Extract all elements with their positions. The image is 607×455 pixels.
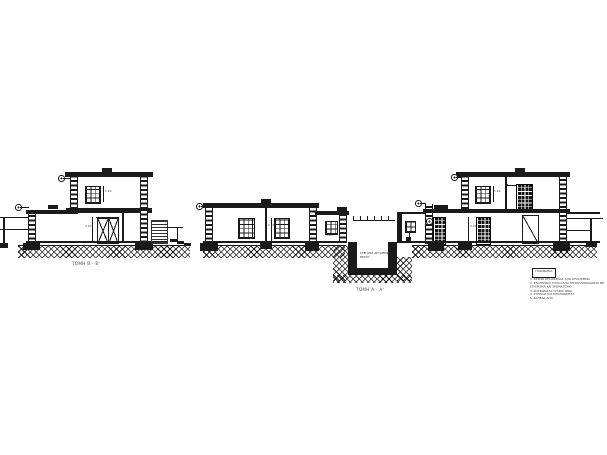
dimension-label: 1.20 bbox=[494, 190, 500, 193]
brick-wall bbox=[461, 177, 469, 209]
legend-title-box: ΥΠΟΜΝΗΜΑ bbox=[532, 268, 556, 278]
brick-wall bbox=[140, 177, 148, 209]
interior-wall bbox=[505, 177, 507, 209]
window bbox=[85, 186, 101, 204]
floor-slab bbox=[203, 241, 347, 243]
step bbox=[177, 241, 184, 244]
dimension-line bbox=[103, 186, 104, 202]
railing bbox=[353, 216, 395, 222]
balcony-door bbox=[516, 184, 533, 212]
tank-floor-slab bbox=[348, 268, 397, 275]
brick-wall bbox=[339, 215, 347, 243]
pergola-post bbox=[590, 219, 592, 241]
dimension-label: 1.20 bbox=[105, 190, 111, 193]
dimension-label: 2.20 bbox=[268, 224, 274, 227]
pergola-rail bbox=[567, 230, 591, 231]
ground-hatch bbox=[333, 275, 412, 283]
leader-line bbox=[420, 203, 426, 204]
step bbox=[170, 239, 177, 242]
dimension-line bbox=[468, 217, 469, 242]
brick-wall bbox=[70, 177, 78, 209]
legend-note-text: 5. ΔΑΠΕΔΑ ΑΠΟ ΜΑΡΜΑΡΟ bbox=[530, 297, 554, 300]
chimney-icon bbox=[261, 199, 271, 203]
floor-slab bbox=[26, 241, 168, 243]
section-label: ΤΟΜΗ Α - Α' bbox=[356, 288, 384, 292]
leader-dot bbox=[506, 184, 509, 187]
section-label: ΤΟΜΗ Β - Β' bbox=[72, 262, 100, 266]
window bbox=[475, 186, 491, 204]
wall bbox=[397, 214, 402, 243]
foundation-pad bbox=[0, 243, 8, 248]
legend-note: 1. ΦΕΡΩΝ ΟΡΓΑΝΙΣΜΟΣ ΑΠΟ ΟΠΛΙΣΜΕΝΟ ΣΚΥΡΟΔ… bbox=[530, 278, 606, 281]
window bbox=[238, 218, 255, 239]
basement-label: ΣΤΕΓΑΝΗ ΔΕΞΑΜΕΝΗ bbox=[360, 252, 390, 255]
legend-note: 5. ΔΑΠΕΔΑ ΑΠΟ ΜΑΡΜΑΡΟ bbox=[530, 297, 554, 300]
roof-slab bbox=[65, 172, 153, 177]
roof-slab bbox=[203, 203, 319, 208]
pergola-post bbox=[3, 218, 5, 243]
ground-hatch bbox=[412, 245, 597, 258]
dimension-label: 2.20 bbox=[470, 225, 476, 228]
dimension-line bbox=[493, 186, 494, 202]
legend-title: ΥΠΟΜΝΗΜΑ bbox=[535, 270, 552, 273]
basement-label: ΝΕΡΟΥ bbox=[360, 256, 370, 259]
dimension-line bbox=[271, 218, 272, 241]
chimney-icon bbox=[515, 168, 525, 172]
floor-slab bbox=[456, 209, 570, 213]
parapet bbox=[337, 207, 347, 211]
window bbox=[405, 221, 416, 233]
balcony-slab bbox=[567, 212, 600, 214]
chimney-icon bbox=[102, 168, 112, 172]
brick-wall bbox=[28, 214, 36, 244]
pergola-beam bbox=[567, 218, 603, 219]
leader-line bbox=[201, 206, 206, 207]
legend-note-text: 1. ΦΕΡΩΝ ΟΡΓΑΝΙΣΜΟΣ ΑΠΟ ΟΠΛΙΣΜΕΝΟ ΣΚΥΡΟΔ… bbox=[530, 278, 606, 281]
leader-line bbox=[20, 207, 29, 208]
door bbox=[522, 215, 539, 244]
window bbox=[274, 218, 290, 239]
ground-hatch bbox=[18, 245, 190, 258]
legend-note: 2. ΕΞΩΤΕΡΙΚΟΙ ΤΟΙΧΟΙ ΑΠΟ ΟΠΤΟΠΛΙΝΘΟΔΟΜΗ … bbox=[530, 282, 607, 289]
dimension-label: 2.20 bbox=[85, 225, 91, 228]
brick-wall bbox=[205, 208, 213, 244]
roof-slab bbox=[456, 172, 570, 177]
leader-line bbox=[507, 185, 516, 186]
chimney-icon bbox=[48, 205, 58, 209]
interior-wall bbox=[122, 213, 124, 241]
dimension-line bbox=[92, 217, 93, 242]
parapet bbox=[434, 205, 448, 209]
legend-note-text: 2. ΕΞΩΤΕΡΙΚΟΙ ΤΟΙΧΟΙ ΑΠΟ ΟΠΤΟΠΛΙΝΘΟΔΟΜΗ … bbox=[530, 282, 607, 288]
window bbox=[325, 221, 338, 235]
stairs bbox=[151, 220, 168, 244]
porch-beam bbox=[166, 227, 183, 228]
porch-post bbox=[177, 228, 178, 242]
dimension-label: 0.90 bbox=[326, 234, 332, 237]
drawing-canvas: 1.20 2.20 ΤΟΜΗ Β - Β' 2.20 bbox=[0, 0, 607, 455]
ground-hatch bbox=[203, 245, 345, 258]
level-marker-icon bbox=[426, 218, 433, 225]
